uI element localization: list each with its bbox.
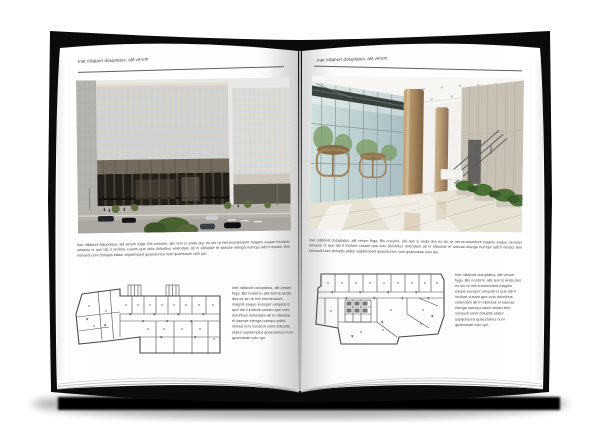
left-page-header-text: Inet nillabort doluptatus, alit verum xyxy=(78,53,248,64)
left-page-body: Inet nillabort doluptatus, alit verum fu… xyxy=(77,239,290,266)
left-page: Inet nillabort doluptatus, alit verum xyxy=(0,0,300,446)
room-marks xyxy=(88,304,214,339)
book-mockup-scene: Inet nillabort doluptatus, alit verum xyxy=(0,0,600,446)
glass-wall xyxy=(310,82,408,205)
right-page-side-text: Inet nillabort doluptatus, alit verum fu… xyxy=(455,272,523,350)
right-page: Inet nillabort doluptatus, alit verum xyxy=(300,0,600,446)
office-building-exterior-photo xyxy=(76,78,291,234)
left-page-header: Inet nillabort doluptatus, alit verum xyxy=(78,53,248,69)
left-page-side-text-body: Inet nillabort doluptatus, alit verum fu… xyxy=(232,285,294,340)
neighbor-building-left xyxy=(76,80,98,206)
right-page-header-text: Inet nillabort doluptatus, alit verum xyxy=(317,52,487,62)
right-page-body: Inet nillabort doluptatus, alit verum fu… xyxy=(309,238,522,264)
door-marks xyxy=(86,313,204,338)
floor-plan-drawing-left xyxy=(74,281,226,369)
door-marks xyxy=(331,291,433,337)
right-page-body-text: Inet nillabort doluptatus, alit verum fu… xyxy=(309,238,522,256)
room-marks xyxy=(327,282,437,332)
neighbor-building-right xyxy=(232,88,291,205)
main-building xyxy=(96,82,230,206)
right-page-header-rule xyxy=(314,66,522,72)
right-page-side-text-body: Inet nillabort doluptatus, alit verum fu… xyxy=(455,272,523,327)
reception-bench xyxy=(441,169,463,179)
floor-plan-drawing-right xyxy=(311,266,451,352)
left-page-side-text: Inet nillabort doluptatus, alit verum fu… xyxy=(232,285,294,351)
lobby-interior-photo xyxy=(310,76,524,233)
left-page-body-text: Inet nillabort doluptatus, alit verum fu… xyxy=(77,239,290,258)
